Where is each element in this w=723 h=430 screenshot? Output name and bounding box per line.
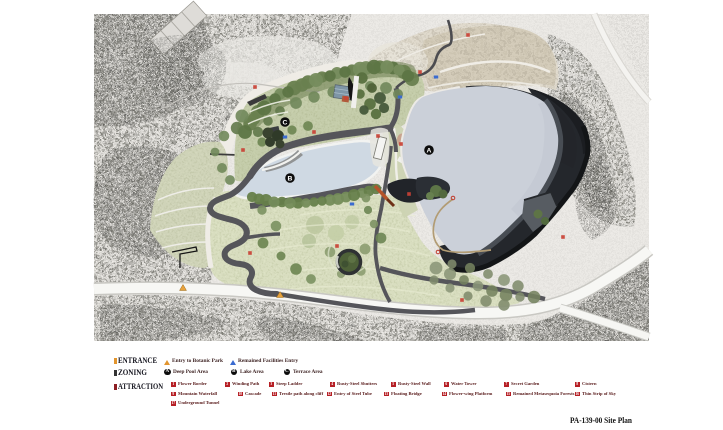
svg-text:A: A: [427, 147, 432, 154]
svg-text:B: B: [288, 175, 293, 182]
svg-text:C: C: [283, 119, 288, 126]
